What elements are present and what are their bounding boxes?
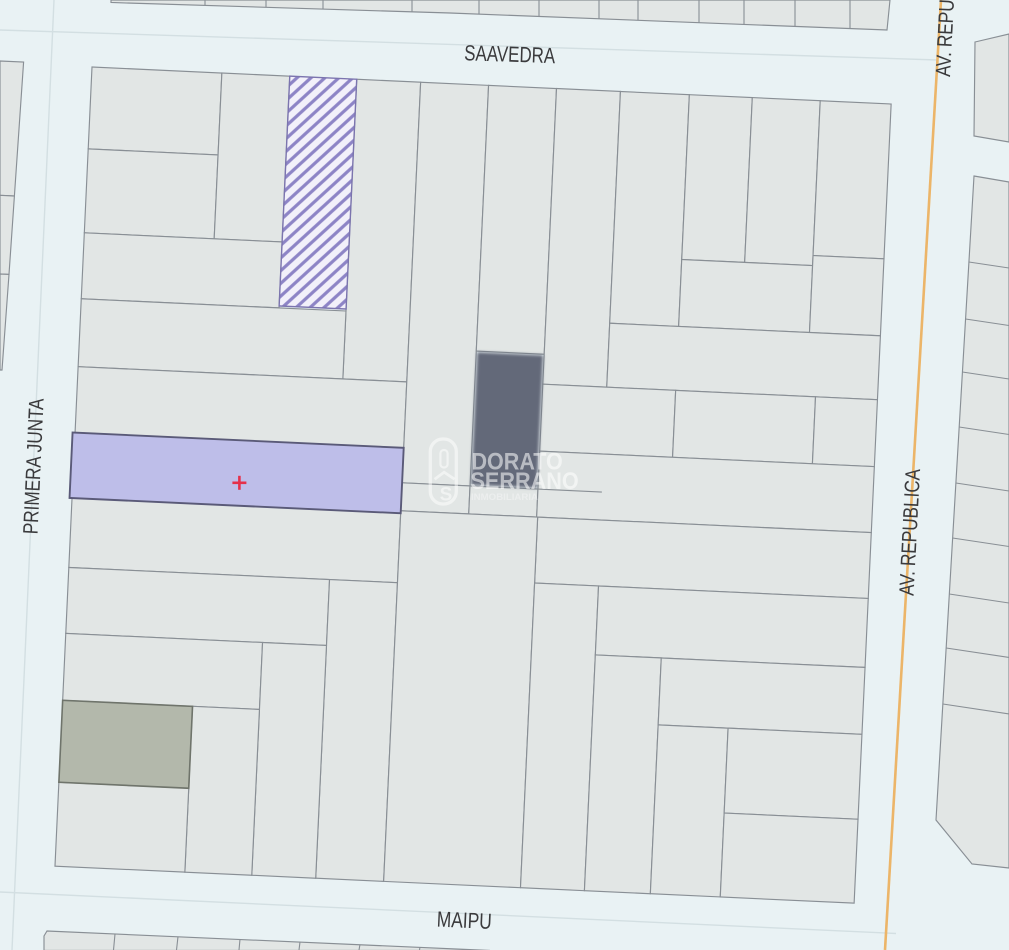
svg-text:MAIPU: MAIPU <box>436 907 492 934</box>
svg-text:INMOBILIARIA: INMOBILIARIA <box>471 492 538 503</box>
svg-text:S: S <box>440 485 453 506</box>
svg-text:SERRANO: SERRANO <box>471 468 579 495</box>
svg-text:SAAVEDRA: SAAVEDRA <box>464 40 556 68</box>
